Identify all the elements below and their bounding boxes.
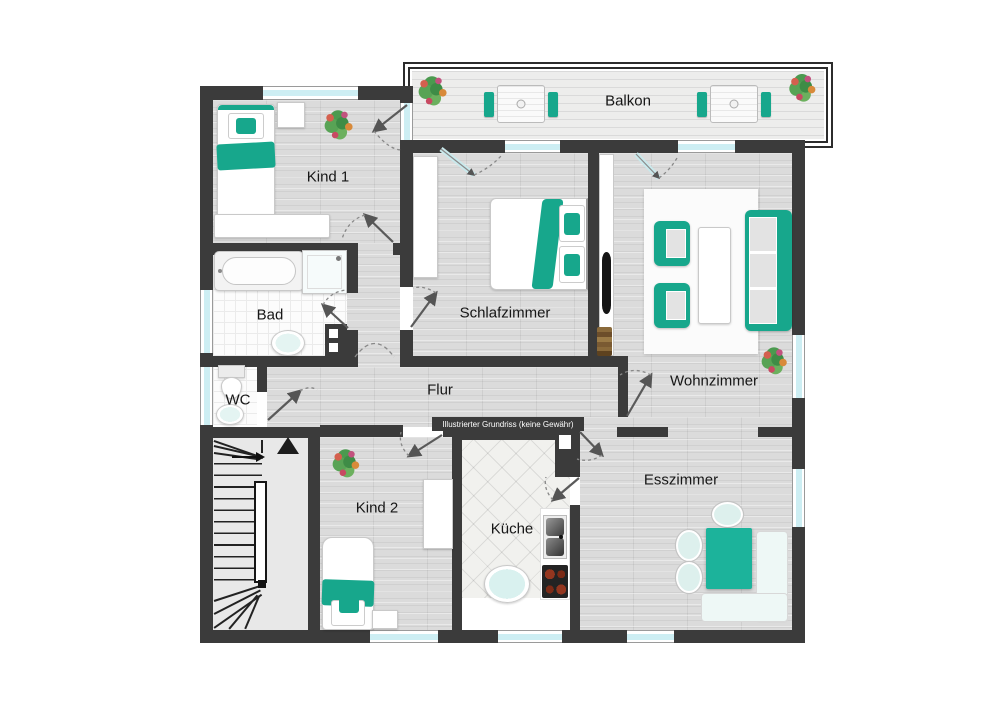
balcony-table-set — [484, 85, 558, 123]
wall-segment — [400, 356, 628, 367]
wall-segment — [452, 437, 462, 630]
armchair — [654, 283, 690, 328]
table-knob-icon — [517, 100, 526, 109]
room-label-kind1: Kind 1 — [307, 169, 350, 186]
balcony-chair-icon — [697, 92, 707, 117]
dining-bench — [701, 593, 788, 622]
wall-segment — [400, 140, 805, 153]
shower — [302, 250, 347, 294]
window — [498, 630, 562, 643]
entrance-arrow-icon — [277, 437, 299, 454]
wall-segment — [320, 425, 403, 437]
balcony-chair-icon — [548, 92, 558, 117]
stove-icon — [542, 565, 568, 598]
room-label-kind2: Kind 2 — [356, 500, 399, 517]
sink-basin — [546, 538, 564, 556]
wall-segment — [618, 367, 628, 417]
plant-icon — [414, 73, 450, 109]
balcony-chair-icon — [761, 92, 771, 117]
bed-pillow — [559, 246, 585, 283]
balcony-door — [400, 103, 413, 140]
pillow-cushion — [564, 254, 580, 276]
floor-plan: Balkon Kind 1 Schlafzimmer Wohnzimmer Ba… — [0, 0, 1000, 706]
window — [627, 630, 674, 643]
bed-pillow — [331, 600, 365, 626]
plant-icon — [320, 107, 356, 143]
sink-basin — [546, 518, 564, 536]
nightstand — [277, 102, 305, 128]
kitchen-round-table — [484, 565, 530, 603]
watermark-text: Illustrierter Grundriss (keine Gewähr) — [442, 420, 573, 429]
balcony-chair-icon — [484, 92, 494, 117]
wall-segment — [308, 438, 320, 630]
balcony-door — [678, 140, 735, 153]
shaft-block — [325, 324, 347, 358]
room-label-wohnzimmer: Wohnzimmer — [670, 373, 758, 390]
bathtub-tap-icon — [218, 269, 222, 273]
plant-icon — [786, 72, 818, 104]
wall-segment — [200, 425, 213, 643]
pillow-cushion — [564, 213, 580, 235]
bed-pillow — [559, 205, 585, 242]
armchair-cushion — [666, 291, 686, 320]
sofa — [745, 210, 792, 331]
stair-handrail — [254, 481, 267, 583]
window — [200, 367, 213, 425]
shaft-opening-icon — [329, 343, 338, 352]
bed-double — [490, 198, 588, 290]
bed-blanket — [216, 142, 275, 171]
dining-chair — [712, 502, 743, 527]
room-label-schlafzimmer: Schlafzimmer — [460, 305, 551, 322]
wall-segment — [257, 356, 267, 392]
stairs-direction-arrowhead-icon — [256, 452, 265, 462]
room-label-wc: WC — [226, 392, 251, 409]
table-knob-icon — [730, 100, 739, 109]
sink-tap-icon — [559, 535, 563, 539]
wardrobe-kind2 — [423, 479, 453, 549]
wall-segment — [792, 153, 805, 335]
plant-icon — [329, 447, 362, 480]
wall-segment — [347, 243, 358, 293]
room-label-bad: Bad — [257, 307, 284, 324]
balcony-table — [497, 85, 545, 123]
balcony-door — [505, 140, 560, 153]
wall-segment — [570, 505, 580, 630]
window — [263, 86, 358, 100]
nightstand — [372, 610, 398, 629]
coffee-table — [698, 227, 731, 324]
shaft-opening-icon — [329, 329, 338, 338]
wall-segment — [792, 398, 805, 469]
room-label-esszimmer: Esszimmer — [644, 472, 718, 489]
washbasin — [271, 330, 305, 356]
wall-segment — [200, 427, 320, 438]
plant-icon — [759, 346, 789, 376]
sofa-cushions — [749, 217, 777, 324]
wall-segment — [200, 86, 213, 290]
watermark: Illustrierter Grundriss (keine Gewähr) — [432, 417, 584, 431]
shaft-opening-icon — [559, 435, 571, 449]
bed-single-kind2 — [322, 537, 374, 630]
kitchen-counter-bottom — [462, 598, 570, 630]
armchair — [654, 221, 690, 266]
wall-segment — [792, 527, 805, 643]
window — [792, 335, 805, 398]
balcony-table — [710, 85, 758, 123]
bed-headboard — [218, 105, 274, 110]
bathtub-basin — [222, 257, 296, 285]
bed-single-kind1 — [217, 104, 275, 224]
wall-segment — [617, 427, 668, 437]
tv-icon — [602, 252, 611, 314]
pillow-cushion — [236, 118, 256, 134]
books-stack-icon — [597, 327, 612, 356]
pillow-cushion — [339, 597, 359, 613]
dining-table — [706, 528, 752, 589]
wardrobe-schlafzimmer — [413, 156, 438, 278]
wall-segment — [588, 153, 599, 356]
window — [792, 469, 805, 527]
window — [200, 290, 213, 353]
bathtub — [214, 251, 304, 291]
kitchen-sink-unit — [543, 515, 567, 559]
dining-chair — [676, 562, 702, 593]
armchair-cushion — [666, 229, 686, 258]
room-label-flur: Flur — [427, 382, 453, 399]
wall-segment — [400, 153, 413, 287]
dining-chair — [676, 530, 702, 561]
bed-pillow — [228, 113, 264, 139]
room-label-balkon: Balkon — [605, 93, 651, 110]
stairs-direction-arrow — [232, 456, 258, 458]
dresser-kind1 — [214, 214, 330, 238]
stair-newel-post — [258, 580, 266, 588]
wall-segment — [758, 427, 792, 437]
room-label-kueche: Küche — [491, 521, 534, 538]
balcony-table-set — [697, 85, 771, 123]
window — [370, 630, 438, 643]
wall-segment — [400, 86, 413, 103]
shower-head-icon — [336, 256, 341, 261]
wall-segment — [555, 428, 580, 477]
